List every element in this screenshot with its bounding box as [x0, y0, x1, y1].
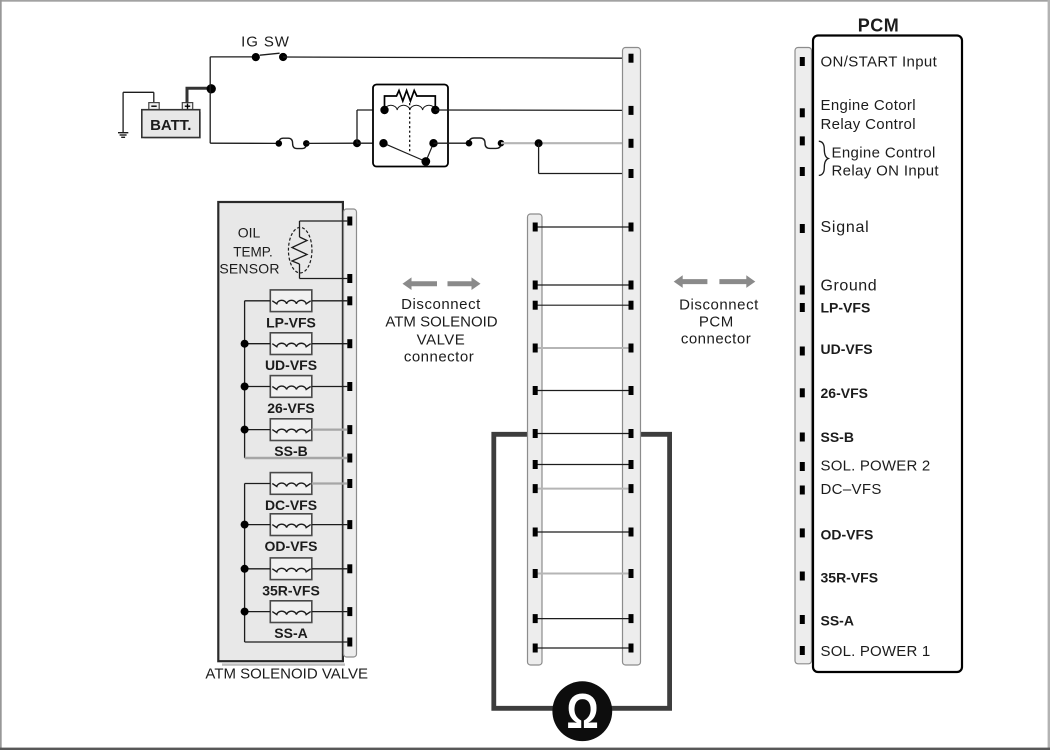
svg-text:26-VFS: 26-VFS	[267, 400, 314, 416]
svg-text:connector: connector	[681, 331, 751, 348]
svg-text:26-VFS: 26-VFS	[821, 385, 868, 401]
svg-text:SS-B: SS-B	[821, 429, 854, 445]
svg-text:Engine Cotorl: Engine Cotorl	[821, 97, 916, 114]
svg-text:35R-VFS: 35R-VFS	[821, 569, 879, 585]
svg-text:Ω: Ω	[566, 684, 598, 739]
svg-text:VALVE: VALVE	[417, 331, 466, 348]
svg-text:ATM SOLENOID: ATM SOLENOID	[385, 314, 497, 331]
svg-text:SOL. POWER 1: SOL. POWER 1	[821, 643, 931, 660]
svg-text:SENSOR: SENSOR	[219, 261, 279, 277]
svg-text:UD-VFS: UD-VFS	[821, 341, 873, 357]
svg-text:Disconnect: Disconnect	[679, 296, 759, 313]
svg-text:ON/START Input: ON/START Input	[821, 54, 938, 71]
svg-text:OIL: OIL	[238, 225, 261, 241]
svg-text:LP-VFS: LP-VFS	[266, 314, 316, 330]
svg-text:Relay Control: Relay Control	[821, 116, 916, 133]
svg-text:OD-VFS: OD-VFS	[265, 538, 318, 554]
svg-text:Signal: Signal	[821, 219, 870, 236]
svg-text:Ground: Ground	[821, 277, 878, 294]
svg-text:Relay ON Input: Relay ON Input	[832, 162, 940, 179]
svg-text:Disconnect: Disconnect	[401, 296, 481, 313]
svg-text:ATM SOLENOID VALVE: ATM SOLENOID VALVE	[205, 666, 368, 683]
svg-text:TEMP.: TEMP.	[233, 245, 273, 260]
svg-text:SS-B: SS-B	[274, 443, 307, 459]
svg-text:IG SW: IG SW	[241, 33, 290, 50]
svg-text:connector: connector	[404, 349, 474, 366]
svg-text:DC-VFS: DC-VFS	[265, 497, 317, 513]
svg-text:PCM: PCM	[699, 314, 734, 331]
svg-text:SOL. POWER 2: SOL. POWER 2	[821, 457, 931, 474]
svg-text:OD-VFS: OD-VFS	[821, 526, 874, 542]
svg-text:SS-A: SS-A	[274, 625, 307, 641]
svg-text:UD-VFS: UD-VFS	[265, 357, 317, 373]
svg-text:LP-VFS: LP-VFS	[821, 300, 871, 316]
svg-text:BATT.: BATT.	[150, 117, 191, 134]
svg-text:PCM: PCM	[858, 15, 900, 35]
svg-text:35R-VFS: 35R-VFS	[262, 582, 320, 598]
svg-text:DC–VFS: DC–VFS	[821, 481, 882, 498]
svg-text:SS-A: SS-A	[821, 613, 854, 629]
svg-text:Engine Control: Engine Control	[832, 144, 936, 161]
